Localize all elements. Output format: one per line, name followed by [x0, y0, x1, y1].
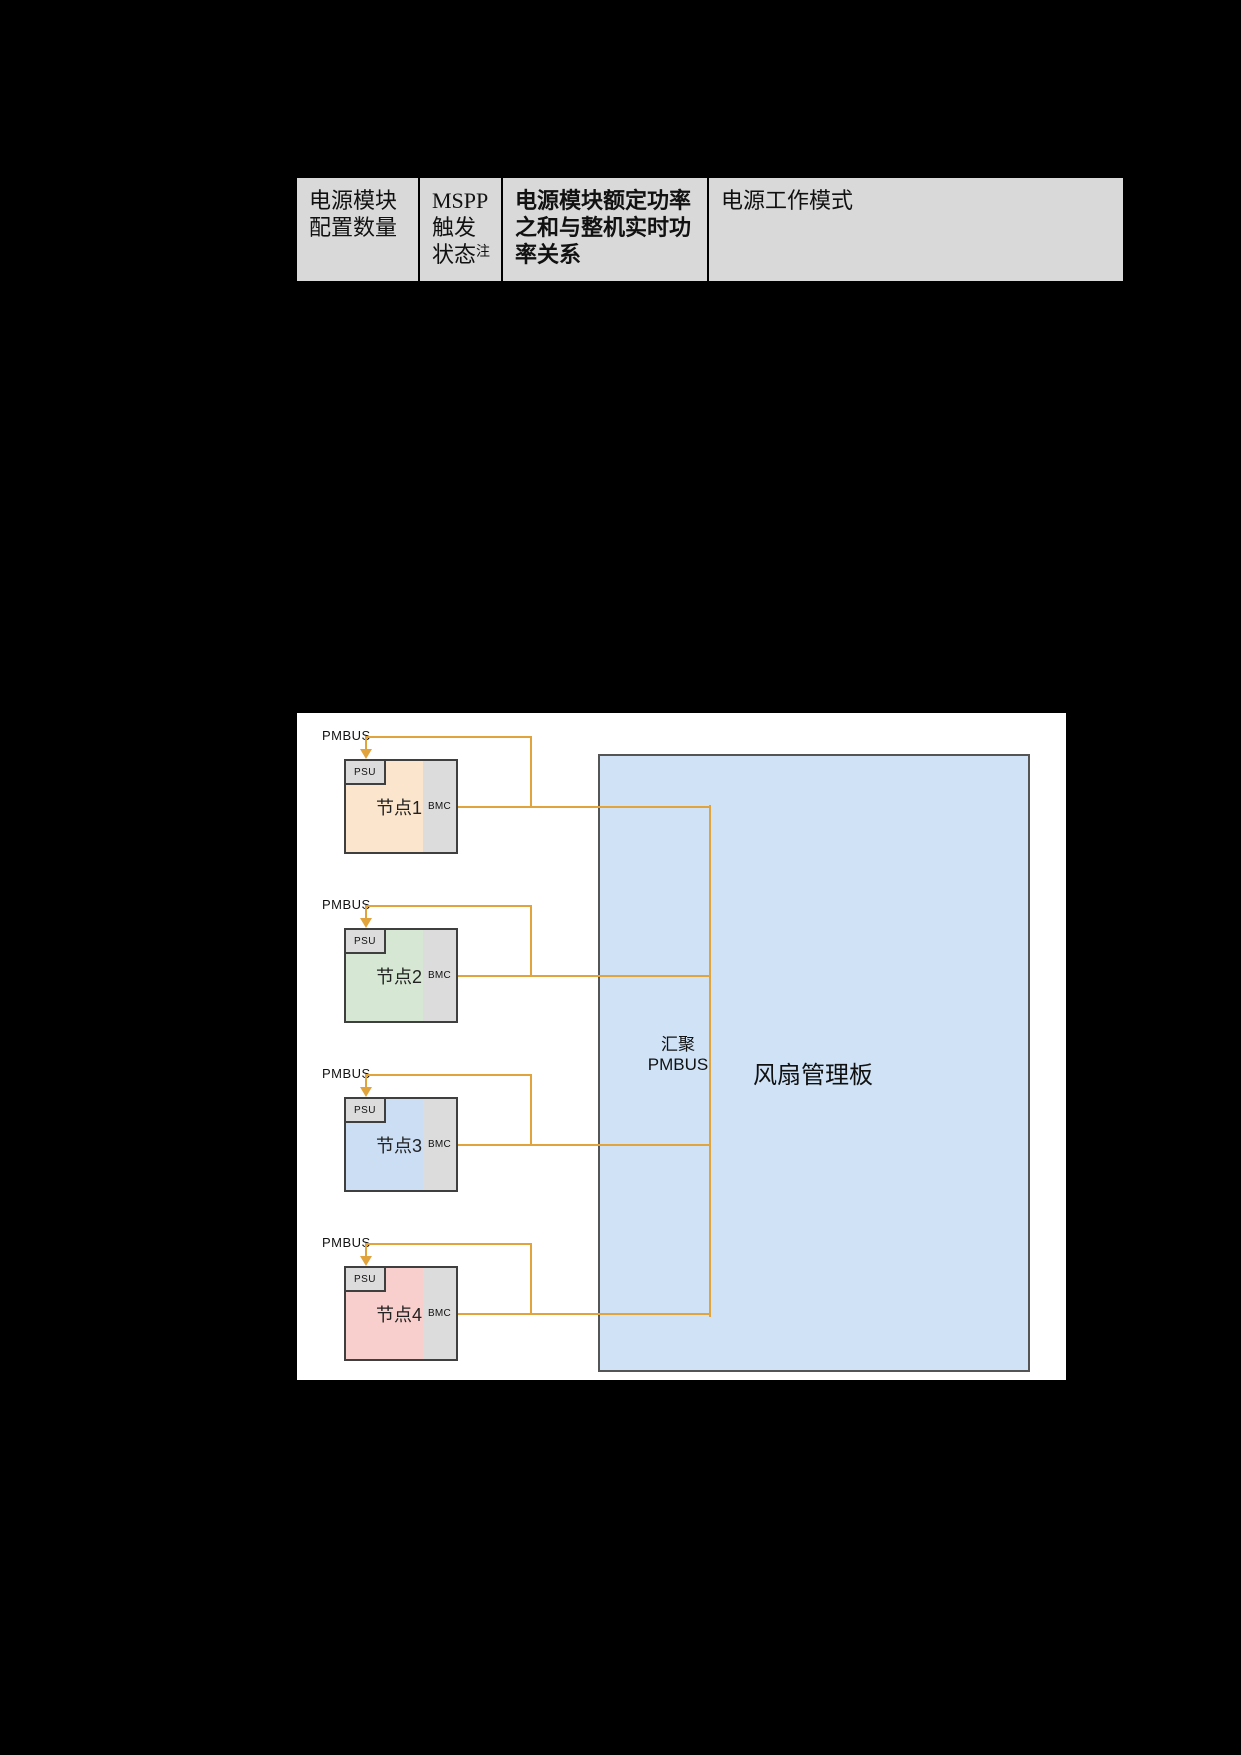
pmbus-drop-line [530, 905, 532, 976]
table-cell-mspp-status: MSPP 触发 状态注 [420, 178, 503, 281]
pmbus-topology-diagram: 汇聚 PMBUS 风扇管理板 PMBUS PSU BMC 节点1 PMBUS P… [297, 713, 1066, 1380]
bmc-connector-line [458, 975, 710, 977]
bmc-strip: BMC [423, 761, 456, 852]
footnote-marker: 注 [476, 243, 490, 259]
arrow-down-icon [360, 1087, 372, 1097]
fan-board-label: 风扇管理板 [663, 1055, 963, 1090]
pmbus-drop-line [530, 1074, 532, 1145]
bmc-strip: BMC [423, 930, 456, 1021]
pmbus-label: PMBUS [322, 1235, 371, 1250]
pmbus-line [365, 1243, 532, 1245]
arrow-down-icon [360, 918, 372, 928]
pmbus-label: PMBUS [322, 897, 371, 912]
node-box-3: PSU BMC 节点3 [344, 1097, 458, 1192]
table-text: 状态注 [432, 241, 497, 268]
table-text: 触发 [432, 214, 497, 241]
table-cell-psu-count: 电源模块 配置数量 [297, 178, 420, 281]
table-text: 之和与整机实时功 [515, 214, 703, 241]
pmbus-arrow-line [365, 736, 367, 750]
table-text: 配置数量 [309, 214, 414, 241]
pmbus-drop-line [530, 1243, 532, 1314]
node-box-4: PSU BMC 节点4 [344, 1266, 458, 1361]
bmc-strip: BMC [423, 1099, 456, 1190]
bmc-connector-line [458, 1313, 710, 1315]
hub-label-line1: 汇聚 [618, 1035, 738, 1055]
node-label: 节点3 [376, 1099, 422, 1190]
node-box-2: PSU BMC 节点2 [344, 928, 458, 1023]
pmbus-drop-line [530, 736, 532, 807]
power-mode-table: 电源模块 配置数量 MSPP 触发 状态注 电源模块额定功率 之和与整机实时功 … [297, 178, 1123, 281]
table-cell-work-mode: 电源工作模式 [709, 178, 1123, 281]
arrow-down-icon [360, 1256, 372, 1266]
table-text: 率关系 [515, 241, 703, 268]
table-text: MSPP [432, 187, 497, 214]
node-label: 节点2 [376, 930, 422, 1021]
pmbus-arrow-line [365, 1074, 367, 1088]
table-text: 状态 [432, 242, 476, 267]
node-label: 节点1 [376, 761, 422, 852]
document-page: { "page": {"background": "#000000"}, "ta… [0, 0, 1241, 1755]
pmbus-arrow-line [365, 1243, 367, 1257]
node-box-1: PSU BMC 节点1 [344, 759, 458, 854]
arrow-down-icon [360, 749, 372, 759]
pmbus-label: PMBUS [322, 728, 371, 743]
pmbus-line [365, 905, 532, 907]
pmbus-label: PMBUS [322, 1066, 371, 1081]
node-label: 节点4 [376, 1268, 422, 1359]
table-cell-power-relation: 电源模块额定功率 之和与整机实时功 率关系 [503, 178, 709, 281]
bmc-connector-line [458, 1144, 710, 1146]
pmbus-trunk-line [709, 805, 711, 1317]
pmbus-line [365, 1074, 532, 1076]
bmc-connector-line [458, 806, 710, 808]
table-text: 电源模块额定功率 [515, 187, 703, 214]
bmc-strip: BMC [423, 1268, 456, 1359]
pmbus-line [365, 736, 532, 738]
table-text: 电源工作模式 [721, 187, 1119, 214]
pmbus-arrow-line [365, 905, 367, 919]
table-text: 电源模块 [309, 187, 414, 214]
